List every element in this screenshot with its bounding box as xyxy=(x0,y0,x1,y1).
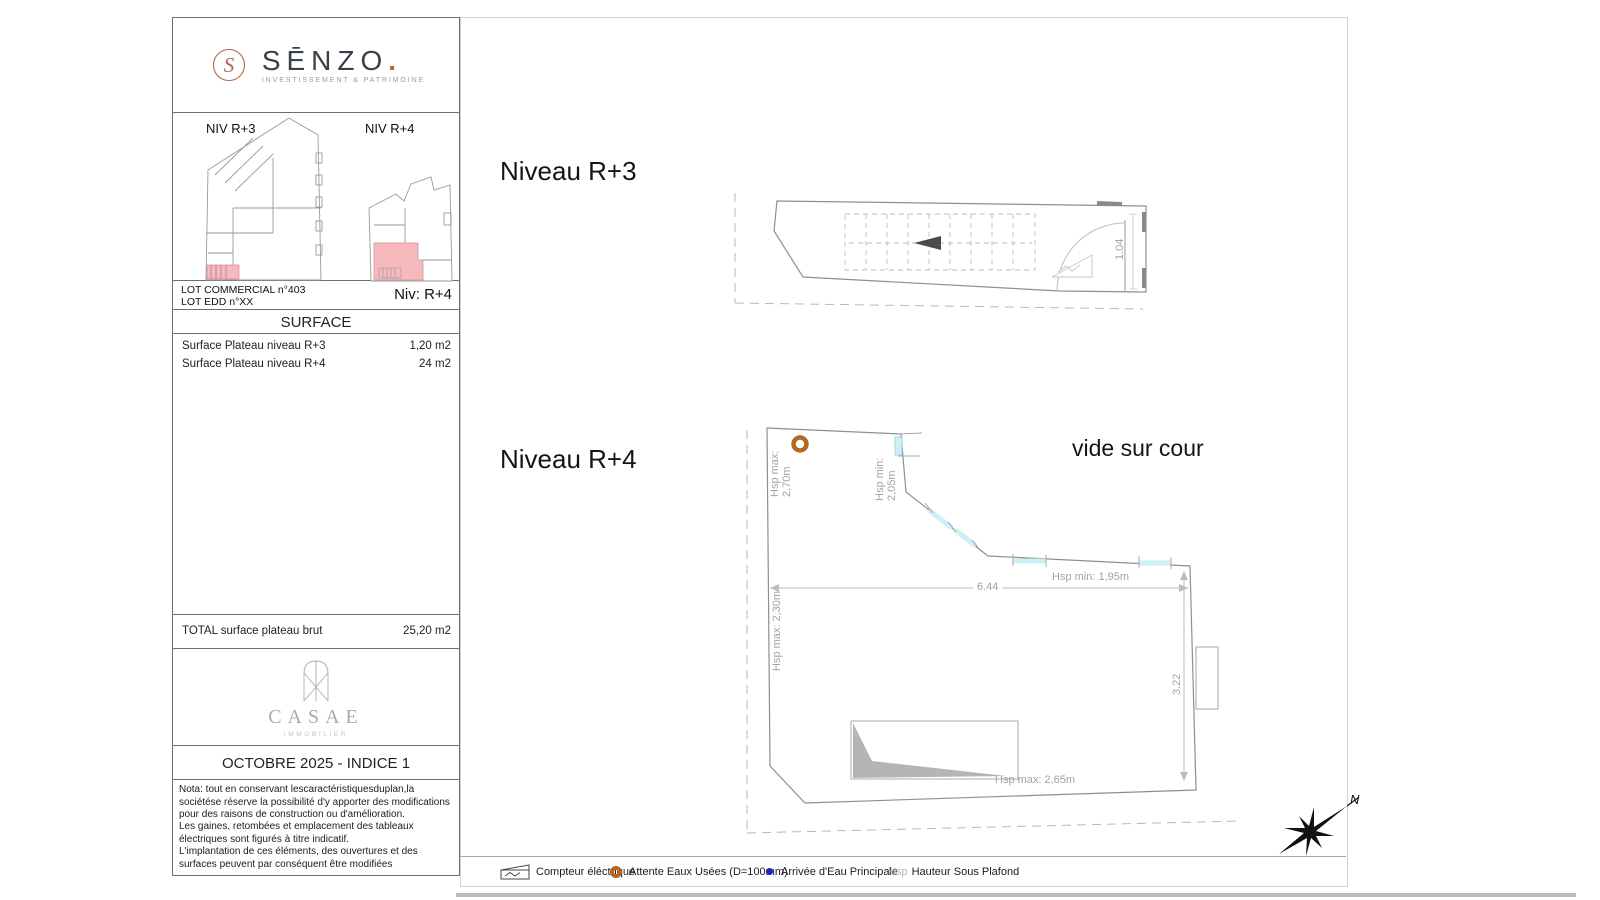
senzo-emblem-icon: S xyxy=(207,43,251,87)
drawing-sheet: Niveau R+3 Niveau R+4 vide sur cour 1.04… xyxy=(0,0,1600,900)
plan-r3-drawing xyxy=(735,193,1146,309)
water-main-icon xyxy=(766,868,773,875)
r3-door-dimension: 1.04 xyxy=(1114,226,1126,260)
surface-table: Surface Plateau niveau R+3 1,20 m2 Surfa… xyxy=(173,334,459,615)
legend-item-hsp: Hsp Hauteur Sous Plafond xyxy=(888,857,1019,886)
legend-label: Hauteur Sous Plafond xyxy=(912,866,1020,878)
plan-r4-drawing xyxy=(747,428,1240,833)
total-value: 25,20 m2 xyxy=(403,625,451,637)
lot-row: LOT COMMERCIAL n°403 LOT EDD n°XX Niv: R… xyxy=(173,281,459,310)
compass-north-label: N xyxy=(1350,792,1359,807)
nota-paragraph-2: Les gaines, retombées et emplacement des… xyxy=(179,821,453,846)
total-label: TOTAL surface plateau brut xyxy=(182,625,322,637)
surface-row-label: Surface Plateau niveau R+3 xyxy=(182,340,326,352)
senzo-logo-block: S SĒNZO. INVESTISSEMENT & PATRIMOINE xyxy=(173,18,459,113)
lot-edd-label: LOT EDD n°XX xyxy=(181,296,305,308)
senzo-tagline: INVESTISSEMENT & PATRIMOINE xyxy=(262,77,425,84)
hsp-max-230-label: Hsp max: 2,30m xyxy=(771,581,783,671)
senzo-dot: . xyxy=(388,45,402,76)
casae-arch-icon xyxy=(298,657,334,703)
hsp-min-195-label: Hsp min: 1,95m xyxy=(1052,571,1129,583)
key-plans-drawing xyxy=(173,113,459,284)
legend-label: Attente Eaux Usées (D=100mm) xyxy=(629,866,788,878)
surface-header: SURFACE xyxy=(173,310,459,334)
surface-row-r4: Surface Plateau niveau R+4 24 m2 xyxy=(173,358,459,370)
nota-block: Nota: tout en conservant lescaractéristi… xyxy=(173,780,459,875)
issue-row: OCTOBRE 2025 - INDICE 1 xyxy=(173,746,459,780)
nota-paragraph-1: Nota: tout en conservant lescaractéristi… xyxy=(179,784,453,821)
surface-row-r3: Surface Plateau niveau R+3 1,20 m2 xyxy=(173,340,459,352)
level-label: Niv: R+4 xyxy=(394,286,452,303)
r4-plan-title: Niveau R+4 xyxy=(500,444,637,475)
svg-text:S: S xyxy=(224,53,235,77)
surface-total-row: TOTAL surface plateau brut 25,20 m2 xyxy=(173,615,459,649)
lot-commercial-label: LOT COMMERCIAL n°403 xyxy=(181,284,305,296)
waste-water-icon xyxy=(610,866,622,878)
casae-wordmark: CASAE xyxy=(268,706,364,729)
sheet-edge-shadow xyxy=(456,893,1576,897)
surface-row-value: 24 m2 xyxy=(419,358,451,370)
hsp-min-205-label: Hsp min: 2,05m xyxy=(874,443,898,501)
casae-tagline: IMMOBILIER xyxy=(284,731,348,738)
nota-paragraph-3: L'implantation de ces éléments, des ouve… xyxy=(179,846,453,871)
casae-logo-block: CASAE IMMOBILIER xyxy=(173,649,459,745)
electric-meter-icon xyxy=(500,863,530,880)
senzo-wordmark: SĒNZO. xyxy=(262,46,425,76)
hsp-max-265-label: Hsp max: 2,65m xyxy=(995,774,1075,786)
legend-bar: Compteur éléctrique Attente Eaux Usées (… xyxy=(460,856,1346,886)
title-block: S SĒNZO. INVESTISSEMENT & PATRIMOINE NIV… xyxy=(172,17,460,876)
legend-label: Arrivée d'Eau Principale xyxy=(781,866,898,878)
legend-item-water-main: Arrivée d'Eau Principale xyxy=(766,857,898,886)
r3-plan-title: Niveau R+3 xyxy=(500,156,637,187)
legend-item-waste-water: Attente Eaux Usées (D=100mm) xyxy=(610,857,788,886)
surface-row-label: Surface Plateau niveau R+4 xyxy=(182,358,326,370)
hsp-max-270-label: Hsp max: 2,70m xyxy=(769,439,793,497)
hsp-abbreviation: Hsp xyxy=(888,866,908,878)
key-plans-block: NIV R+3 NIV R+4 xyxy=(173,113,459,281)
r4-height-dimension: 3.22 xyxy=(1171,655,1183,695)
compass-rose-icon xyxy=(1279,797,1359,856)
r4-width-dimension: 6.44 xyxy=(973,581,1002,593)
surface-row-value: 1,20 m2 xyxy=(409,340,451,352)
vide-sur-cour-label: vide sur cour xyxy=(1072,435,1204,462)
